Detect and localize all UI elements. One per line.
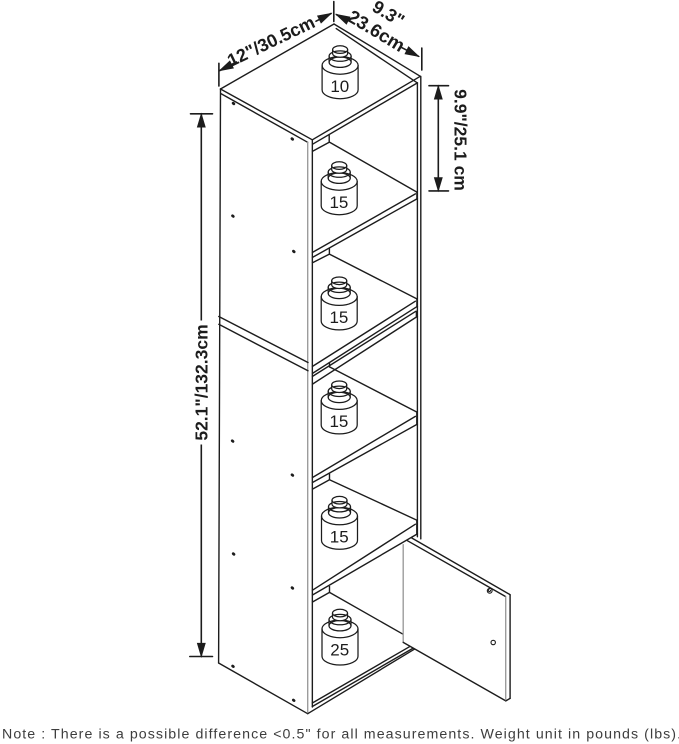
svg-text:15: 15 bbox=[329, 193, 348, 212]
svg-text:15: 15 bbox=[329, 412, 348, 431]
svg-text:Note : There is a possible dif: Note : There is a possible difference <0… bbox=[2, 727, 679, 743]
svg-text:52.1"/132.3cm: 52.1"/132.3cm bbox=[192, 324, 212, 440]
svg-text:25: 25 bbox=[330, 641, 349, 660]
svg-text:15: 15 bbox=[330, 528, 349, 547]
svg-text:15: 15 bbox=[329, 308, 348, 327]
svg-text:10: 10 bbox=[330, 77, 349, 96]
svg-text:9.9"/25.1 cm: 9.9"/25.1 cm bbox=[451, 89, 471, 191]
